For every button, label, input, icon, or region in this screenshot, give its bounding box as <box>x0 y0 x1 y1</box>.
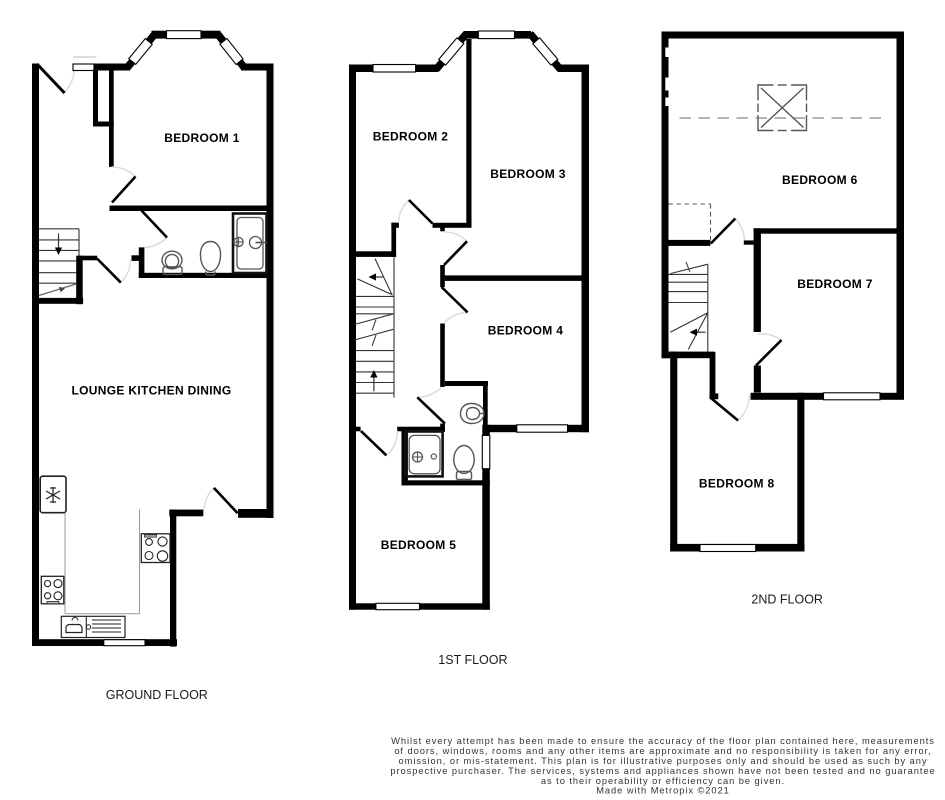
svg-text:BEDROOM 6: BEDROOM 6 <box>782 173 858 187</box>
svg-text:BEDROOM 1: BEDROOM 1 <box>164 131 240 145</box>
svg-text:BEDROOM 4: BEDROOM 4 <box>488 324 564 338</box>
svg-text:prospective purchaser. The ser: prospective purchaser. The services, sys… <box>390 766 935 776</box>
svg-text:1ST FLOOR: 1ST FLOOR <box>438 653 507 667</box>
svg-text:as to their operability or eff: as to their operability or efficiency ca… <box>541 776 785 786</box>
svg-text:Whilst every attempt has been: Whilst every attempt has been made to en… <box>391 736 935 746</box>
svg-text:BEDROOM 7: BEDROOM 7 <box>797 277 873 291</box>
svg-text:Made with Metropix ©2021: Made with Metropix ©2021 <box>596 786 730 796</box>
svg-text:GROUND FLOOR: GROUND FLOOR <box>106 688 208 702</box>
svg-text:LOUNGE KITCHEN DINING: LOUNGE KITCHEN DINING <box>71 384 231 398</box>
svg-text:BEDROOM 5: BEDROOM 5 <box>381 538 457 552</box>
svg-text:2ND FLOOR: 2ND FLOOR <box>751 593 823 607</box>
svg-text:BEDROOM 3: BEDROOM 3 <box>490 167 566 181</box>
svg-text:of doors, windows, rooms and a: of doors, windows, rooms and any other i… <box>394 746 931 756</box>
svg-text:BEDROOM 2: BEDROOM 2 <box>373 130 449 144</box>
svg-text:BEDROOM 8: BEDROOM 8 <box>699 477 775 491</box>
svg-text:omission, or mis-statement. Th: omission, or mis-statement. This plan is… <box>399 756 928 766</box>
